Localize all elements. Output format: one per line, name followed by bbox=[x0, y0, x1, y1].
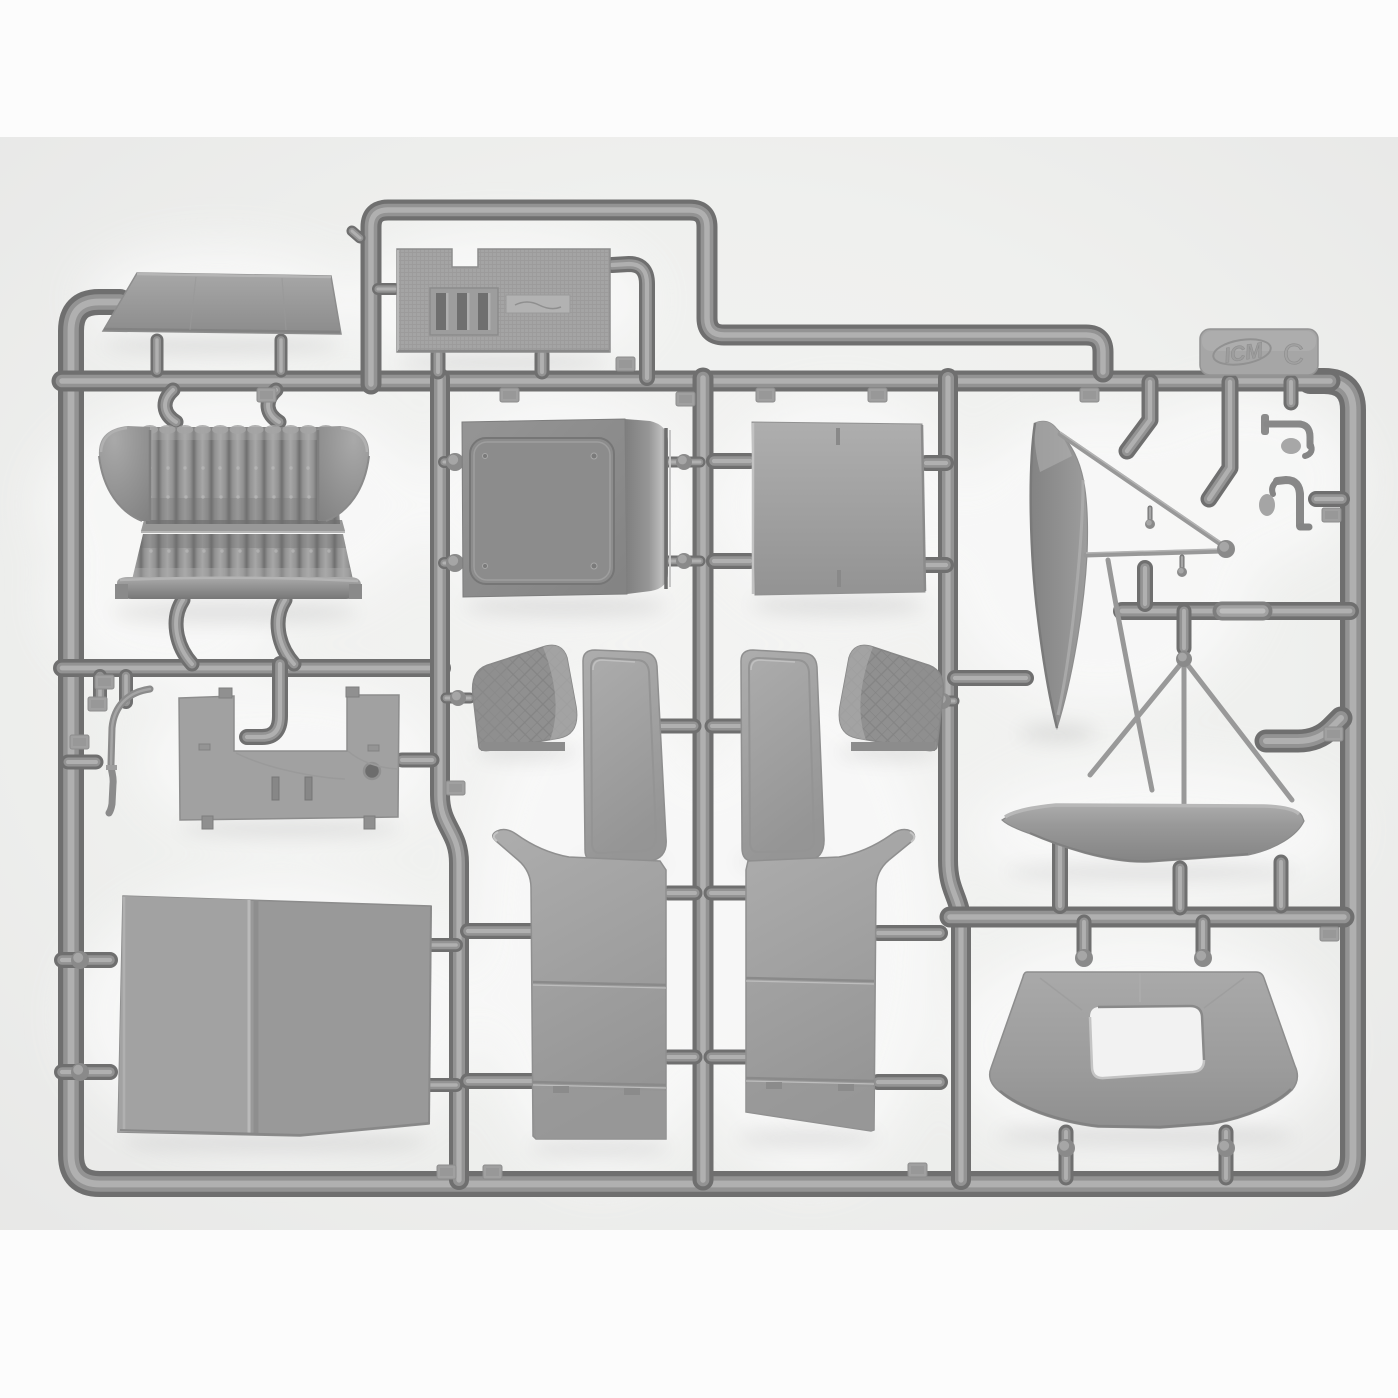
svg-text:C: C bbox=[1283, 339, 1304, 371]
